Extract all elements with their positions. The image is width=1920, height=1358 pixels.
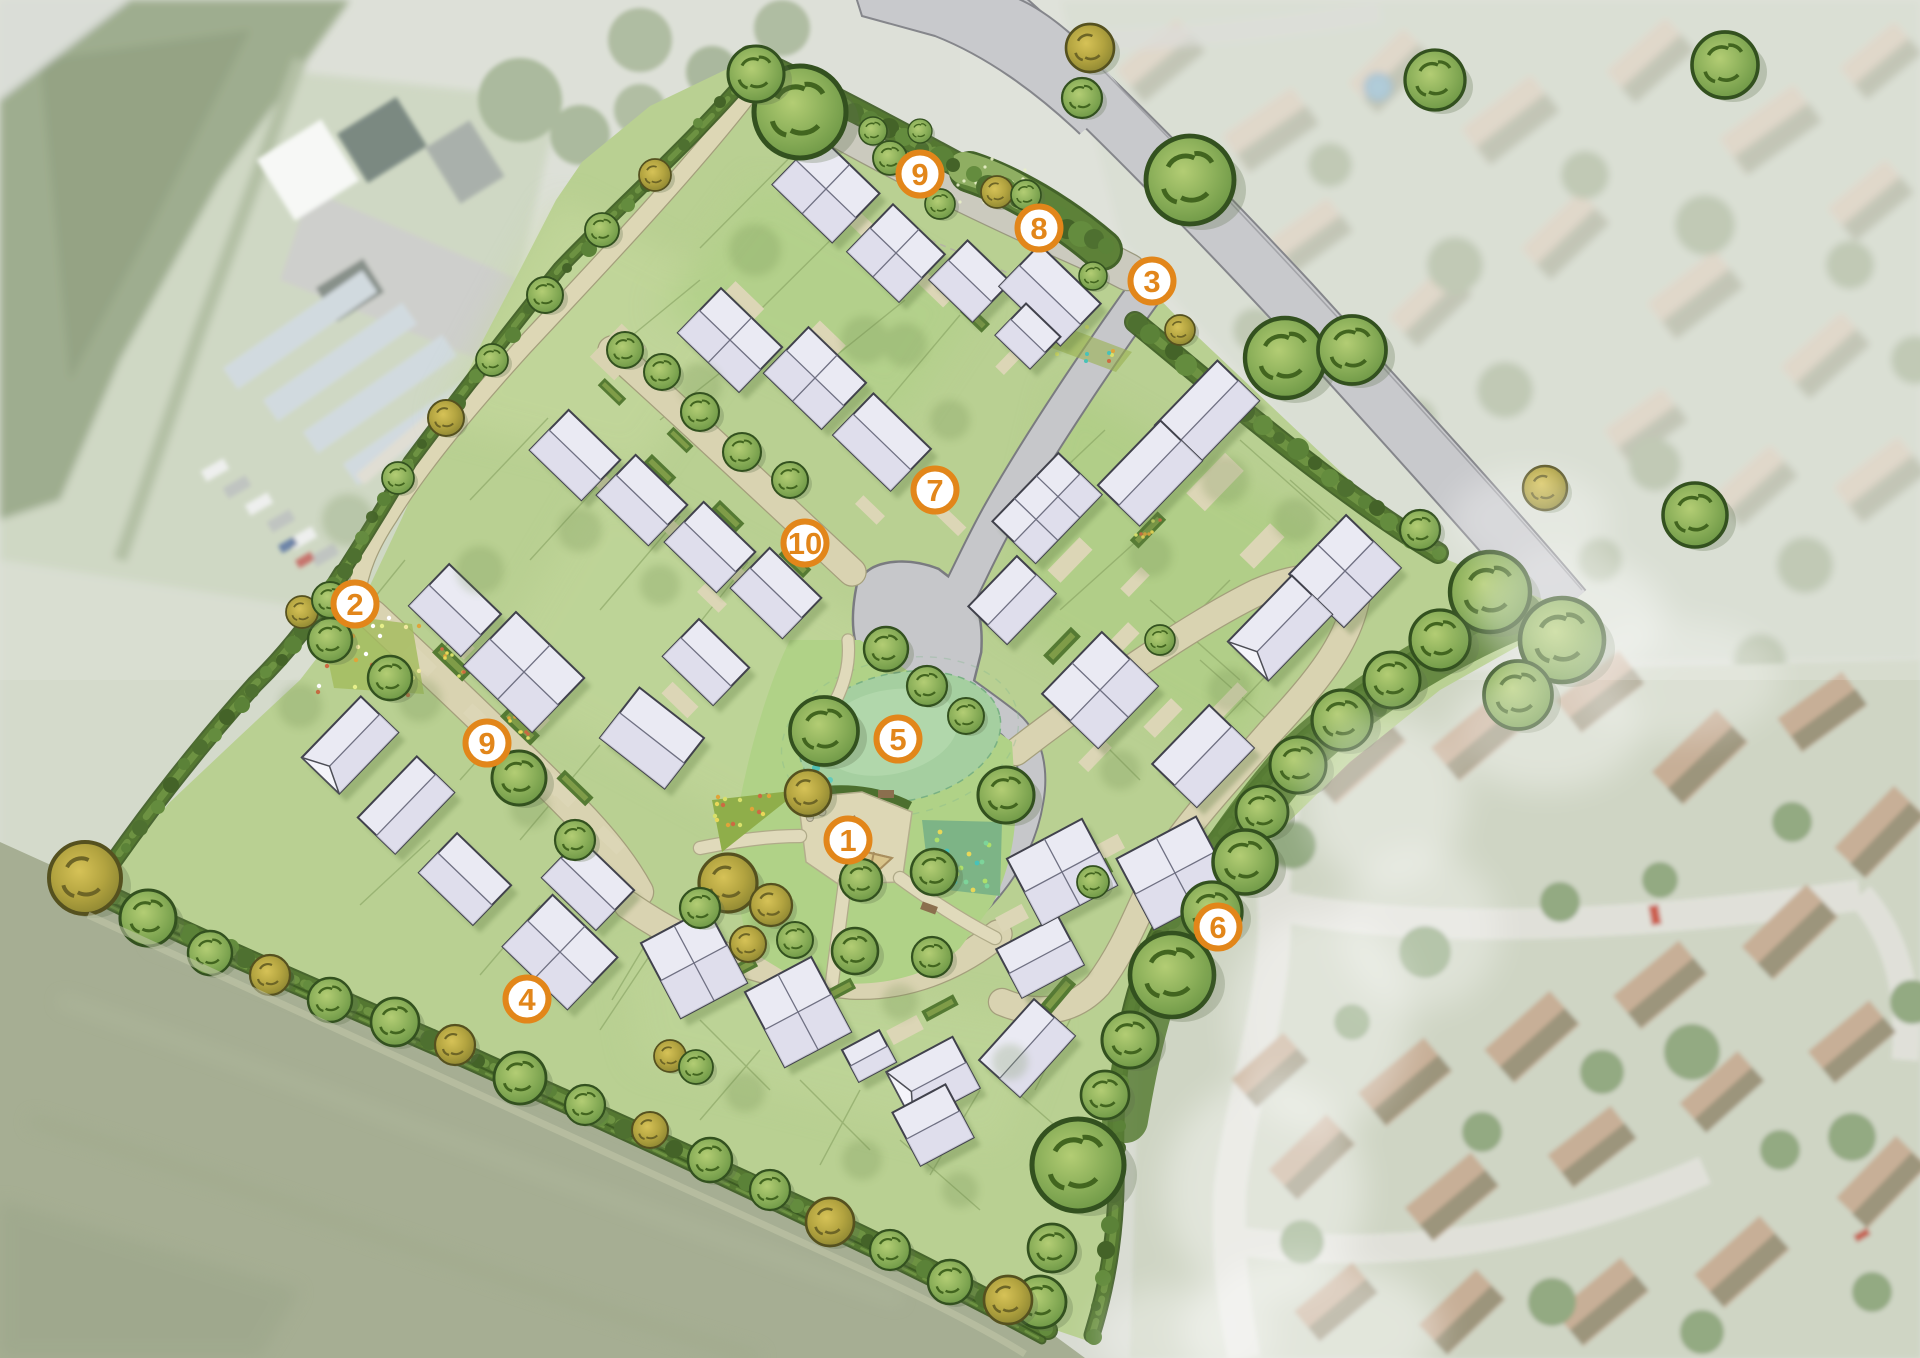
svg-text:9: 9	[478, 726, 495, 761]
svg-text:1: 1	[839, 823, 856, 858]
svg-text:10: 10	[788, 526, 822, 561]
svg-text:2: 2	[346, 587, 363, 622]
svg-text:5: 5	[889, 722, 906, 757]
svg-text:4: 4	[518, 982, 536, 1017]
svg-text:3: 3	[1143, 264, 1160, 299]
svg-text:7: 7	[926, 473, 943, 508]
svg-text:8: 8	[1030, 211, 1047, 246]
svg-text:6: 6	[1209, 910, 1226, 945]
svg-text:9: 9	[911, 157, 928, 192]
